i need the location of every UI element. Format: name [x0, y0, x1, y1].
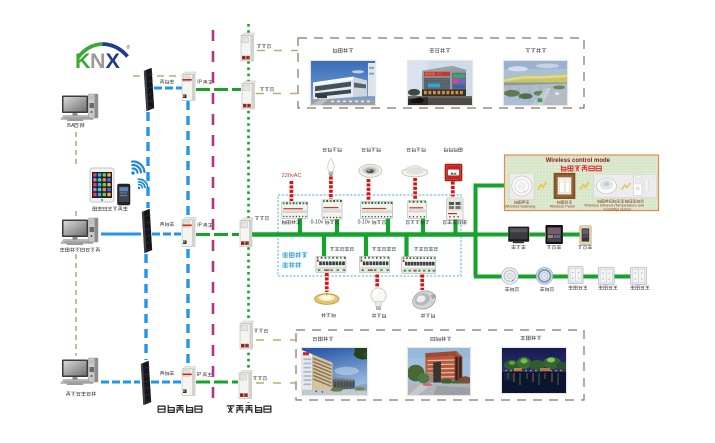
svg-text:K: K — [75, 49, 91, 73]
svg-text:BA: BA — [67, 123, 75, 129]
svg-text:humidity) sensor: humidity) sensor — [604, 207, 633, 211]
svg-text:220vAC: 220vAC — [282, 173, 302, 179]
svg-text:IP: IP — [197, 372, 202, 378]
svg-text:X: X — [106, 49, 121, 73]
svg-text:®: ® — [127, 44, 131, 51]
svg-text:Wireless Panel: Wireless Panel — [550, 204, 575, 208]
svg-text:IP: IP — [197, 80, 202, 86]
svg-text:Wireless Gateway: Wireless Gateway — [505, 204, 536, 208]
svg-text:IP: IP — [197, 223, 202, 229]
svg-text:0-10v: 0-10v — [311, 220, 324, 226]
svg-text:0-10v: 0-10v — [358, 220, 371, 226]
svg-text:Wireless control mode: Wireless control mode — [546, 158, 611, 164]
svg-text:N: N — [90, 49, 106, 73]
